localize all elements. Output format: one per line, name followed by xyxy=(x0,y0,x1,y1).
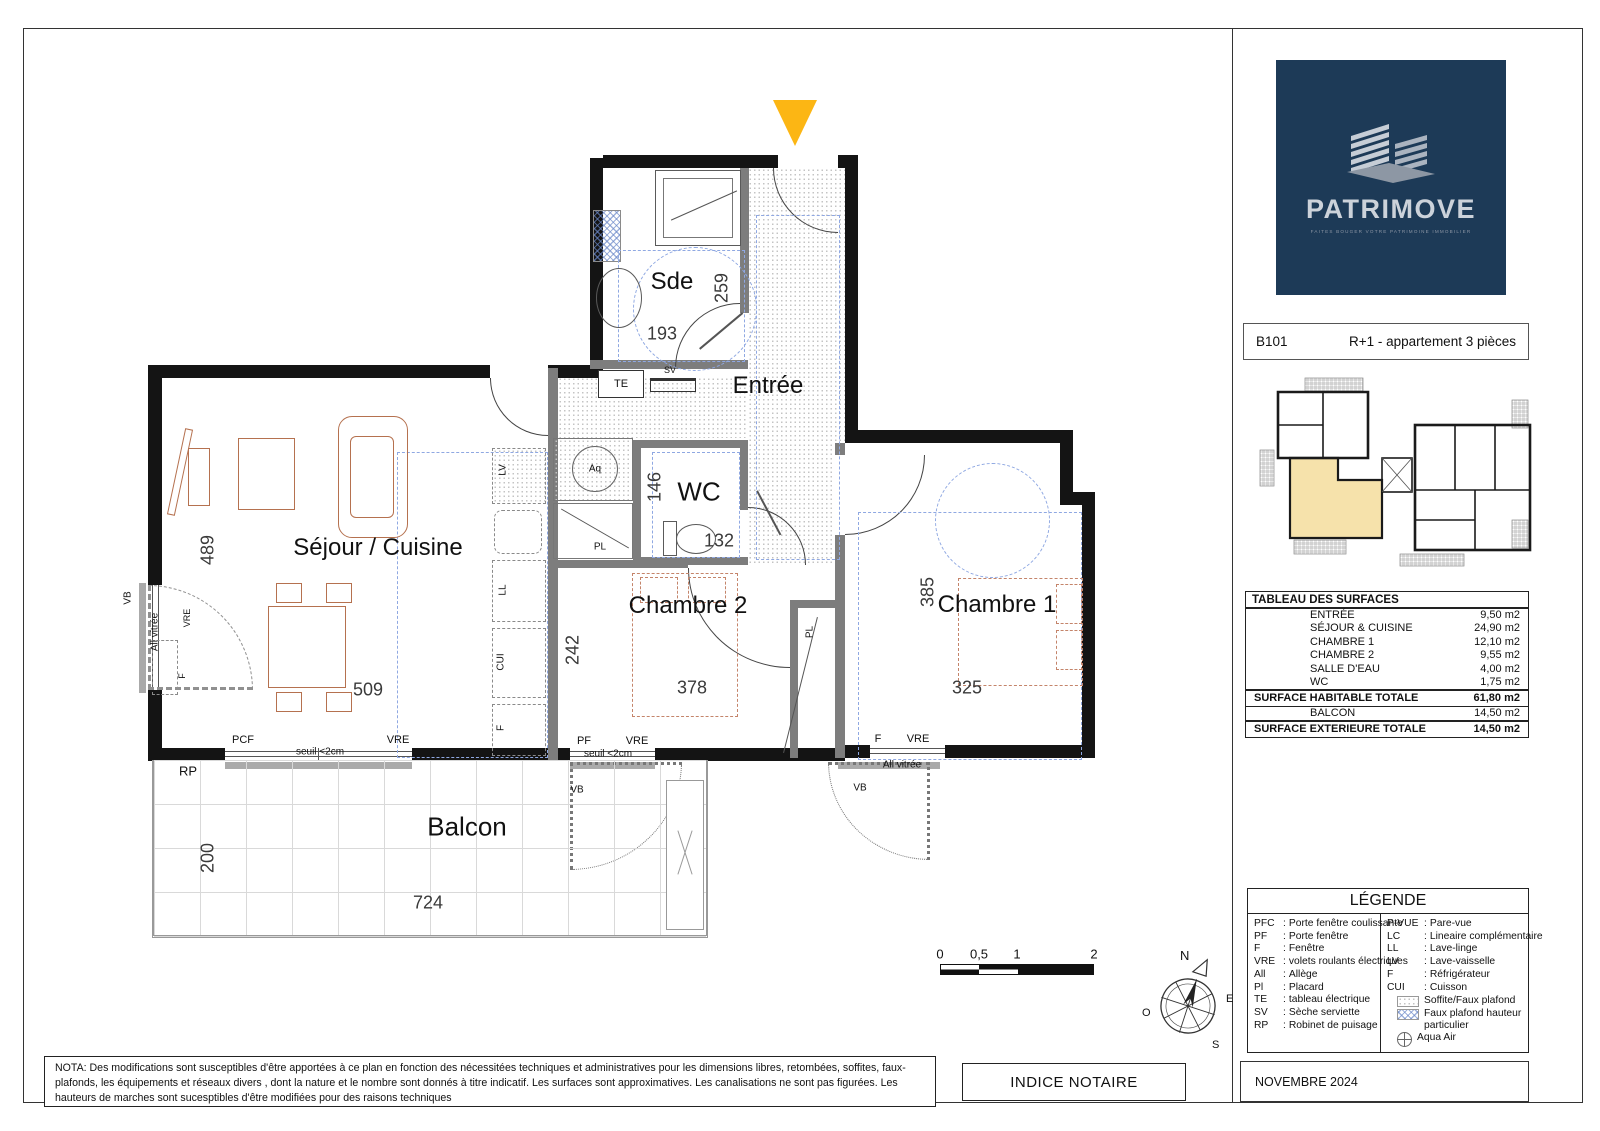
dim-wc-w: 132 xyxy=(704,531,734,552)
f-label: F xyxy=(875,733,882,745)
legend-abbr: LL xyxy=(1387,943,1421,956)
legend-text: Placard xyxy=(1289,982,1324,995)
surface-name: ENTRÉE xyxy=(1310,609,1355,622)
legend-text: Lave-vaisselle xyxy=(1430,956,1495,969)
lv-label: LV xyxy=(498,464,509,476)
wall-segment xyxy=(1060,492,1095,505)
legend-abbr: P-VUE xyxy=(1387,918,1421,931)
surface-name: SURFACE HABITABLE TOTALE xyxy=(1254,692,1418,706)
legend-text: Faux plafond hauteur particulier xyxy=(1424,1008,1539,1031)
partition xyxy=(790,600,835,608)
aqua-air-icon xyxy=(1397,1032,1412,1047)
nota-box: NOTA: Des modifications sont susceptible… xyxy=(44,1056,936,1107)
legend-text: Réfrigérateur xyxy=(1430,969,1490,982)
legend-title: LÉGENDE xyxy=(1248,889,1528,914)
ll-label: LL xyxy=(498,584,509,595)
surface-value: 9,55 m2 xyxy=(1480,649,1520,662)
dim-chambre2-h: 242 xyxy=(563,635,584,665)
lot-title: R+1 - appartement 3 pièces xyxy=(1349,334,1516,349)
kitchen-sink xyxy=(494,510,542,554)
placard-label: PL xyxy=(805,626,816,638)
vre-label: VRE xyxy=(626,735,649,747)
side-table xyxy=(238,438,295,510)
room-label-chambre2: Chambre 2 xyxy=(629,592,748,620)
fridge-label: F xyxy=(496,725,507,731)
all-vitree-label: All vitrée xyxy=(150,613,161,651)
scale-tick: 2 xyxy=(1090,947,1097,962)
company-logo: PATRIMOVE FAITES BOUGER VOTRE PATRIMOINE… xyxy=(1276,60,1506,295)
surface-value: 14,50 m2 xyxy=(1474,723,1520,737)
surface-name: WC xyxy=(1310,676,1328,689)
surface-name: CHAMBRE 2 xyxy=(1310,649,1374,662)
compass-s: S xyxy=(1212,1039,1219,1051)
surface-value: 24,90 m2 xyxy=(1474,622,1520,635)
dim-sde-w: 193 xyxy=(647,324,677,345)
dim-wc-h: 146 xyxy=(645,472,666,502)
surface-value: 12,10 m2 xyxy=(1474,636,1520,649)
scale-segment xyxy=(941,965,979,974)
balcony-door-arc xyxy=(828,762,930,860)
legend-text: Allège xyxy=(1289,969,1318,982)
turning-circle xyxy=(633,247,757,371)
chair xyxy=(276,583,302,603)
scale-bar xyxy=(940,964,1094,975)
surface-name: CHAMBRE 1 xyxy=(1310,636,1374,649)
dim-sde-h: 259 xyxy=(712,273,733,303)
window-swing-arc xyxy=(148,585,253,690)
surface-row: BALCON14,50 m2 xyxy=(1246,706,1528,720)
indice-notaire-label: INDICE NOTAIRE xyxy=(1010,1074,1138,1091)
legend-abbr: VRE xyxy=(1254,956,1280,969)
dim-balcon-h: 200 xyxy=(198,843,219,873)
washbasin xyxy=(596,268,642,328)
partition xyxy=(790,600,798,758)
dim-sejour-h: 489 xyxy=(198,535,219,565)
scale-segment xyxy=(979,965,1018,974)
pillow xyxy=(1056,630,1082,670)
lot-header: B101 R+1 - appartement 3 pièces xyxy=(1243,323,1529,360)
legend-text: Fenêtre xyxy=(1289,943,1325,956)
wall-segment xyxy=(1082,505,1095,758)
door-arc-sejour xyxy=(490,378,548,436)
legend-abbr: LV xyxy=(1387,956,1421,969)
cui-label: CUI xyxy=(496,653,507,670)
entrance-arrow xyxy=(773,100,817,146)
surface-value: 4,00 m2 xyxy=(1480,663,1520,676)
pillow xyxy=(1056,584,1082,624)
rp-label: RP xyxy=(179,764,197,779)
chair xyxy=(326,692,352,712)
surface-table-title: TABLEAU DES SURFACES xyxy=(1246,592,1528,609)
partition xyxy=(633,440,748,448)
surface-name: BALCON xyxy=(1310,707,1355,720)
key-plan xyxy=(1250,370,1535,570)
room-label-entree: Entrée xyxy=(733,372,804,400)
surface-value: 9,50 m2 xyxy=(1480,609,1520,622)
faux-plafond-swatch xyxy=(1397,1009,1419,1020)
seuil-label: seuil <2cm xyxy=(296,747,344,758)
vre-label: VRE xyxy=(182,609,192,628)
legend-abbr: TE xyxy=(1254,994,1280,1007)
legend-abbr: LC xyxy=(1387,931,1421,944)
vb-label: VB xyxy=(853,783,866,794)
partition xyxy=(633,440,641,565)
legend-abbr: F xyxy=(1254,943,1280,956)
wall-segment xyxy=(148,365,162,585)
toilet-tank xyxy=(663,521,677,556)
logo-tagline: FAITES BOUGER VOTRE PATRIMOINE IMMOBILIE… xyxy=(1311,229,1472,234)
room-label-chambre1: Chambre 1 xyxy=(938,591,1057,619)
nota-text: NOTA: Des modifications sont susceptible… xyxy=(55,1062,906,1104)
legend-text: tableau électrique xyxy=(1289,994,1370,1007)
surface-row: WC1,75 m2 xyxy=(1246,676,1528,689)
vre-label: VRE xyxy=(387,734,410,746)
surface-row: SALLE D'EAU4,00 m2 xyxy=(1246,663,1528,676)
compass-o: O xyxy=(1142,1007,1151,1019)
scale-segment xyxy=(1018,965,1093,974)
surface-total-row: SURFACE EXTERIEURE TOTALE14,50 m2 xyxy=(1246,720,1528,737)
surface-row: CHAMBRE 112,10 m2 xyxy=(1246,636,1528,649)
legend-abbr: F xyxy=(1387,969,1421,982)
vb-label: VB xyxy=(570,785,583,796)
insulated-wall xyxy=(593,210,621,262)
window-sill xyxy=(139,583,146,693)
legend-text: Porte fenêtre xyxy=(1289,931,1349,944)
dim-chambre1-h: 385 xyxy=(918,577,939,607)
aqua-air-label: Aq xyxy=(589,464,601,475)
legend-text: Pare-vue xyxy=(1430,918,1472,931)
partition xyxy=(553,560,688,568)
indice-notaire-box: INDICE NOTAIRE xyxy=(962,1063,1186,1101)
legend-abbr: RP xyxy=(1254,1020,1280,1033)
room-label-balcon: Balcon xyxy=(427,812,507,843)
dishwasher xyxy=(492,448,546,504)
surface-name: SURFACE EXTERIEURE TOTALE xyxy=(1254,723,1426,737)
wall-segment xyxy=(603,155,778,168)
surface-table: TABLEAU DES SURFACES ENTRÉE9,50 m2 SÉJOU… xyxy=(1245,591,1529,738)
surface-row: CHAMBRE 29,55 m2 xyxy=(1246,649,1528,662)
wall-segment xyxy=(148,365,490,378)
chair xyxy=(276,692,302,712)
wall-segment xyxy=(858,430,1073,443)
dining-table xyxy=(268,606,346,688)
dim-chambre2-w: 378 xyxy=(677,678,707,699)
sofa-cushions xyxy=(350,436,394,518)
room-label-wc: WC xyxy=(677,477,720,508)
surface-name: SÉJOUR & CUISINE xyxy=(1310,622,1413,635)
pf-label: PF xyxy=(577,735,591,747)
placard-label: PL xyxy=(594,542,606,553)
seche-serviette xyxy=(650,378,696,392)
scale-tick: 0 xyxy=(936,947,943,962)
surface-row: SÉJOUR & CUISINE24,90 m2 xyxy=(1246,622,1528,635)
room-label-sde: Sde xyxy=(651,268,694,296)
partition xyxy=(835,535,845,758)
te-label: TE xyxy=(614,378,628,390)
scale-tick: 1 xyxy=(1013,947,1020,962)
compass-n: N xyxy=(1180,948,1189,963)
dim-chambre1-w: 325 xyxy=(952,678,982,699)
soffite-swatch xyxy=(1397,996,1419,1007)
legend-text: Lave-linge xyxy=(1430,943,1478,956)
legend-text: Soffite/Faux plafond xyxy=(1424,995,1539,1007)
legend-text: Lineaire complémentaire xyxy=(1430,931,1543,944)
logo-wordmark: PATRIMOVE xyxy=(1306,194,1476,225)
legend-text: Cuisson xyxy=(1430,982,1467,995)
turning-circle xyxy=(935,463,1050,578)
legend-abbr: All xyxy=(1254,969,1280,982)
legend-abbr: PFC xyxy=(1254,918,1280,931)
tv-stand xyxy=(188,448,210,506)
lot-number: B101 xyxy=(1256,334,1288,349)
dim-balcon-w: 724 xyxy=(413,893,443,914)
legend-abbr: CUI xyxy=(1387,982,1421,995)
date-box: NOVEMBRE 2024 xyxy=(1240,1061,1529,1102)
vre-label: VRE xyxy=(907,733,930,745)
surface-value: 14,50 m2 xyxy=(1474,707,1520,720)
all-vitree-label: All vitrée xyxy=(883,760,921,771)
compass-rose: N E S O xyxy=(1140,946,1236,1052)
partition xyxy=(740,440,748,510)
seuil-label: seuil <2cm xyxy=(584,749,632,760)
chair xyxy=(326,583,352,603)
legend-text: Sèche serviette xyxy=(1289,1007,1360,1020)
key-plan-unit-highlight xyxy=(1290,458,1382,538)
f-label: F xyxy=(177,673,187,679)
surface-value: 1,75 m2 xyxy=(1480,676,1520,689)
legend-left-column: PFC:Porte fenêtre coulissante PF:Porte f… xyxy=(1248,914,1381,1052)
surface-value: 61,80 m2 xyxy=(1474,692,1520,706)
surface-row: ENTRÉE9,50 m2 xyxy=(1246,609,1528,622)
legend-abbr: SV xyxy=(1254,1007,1280,1020)
legend-text: Aqua Air xyxy=(1417,1032,1532,1044)
compass-e: E xyxy=(1226,993,1233,1005)
date-label: NOVEMBRE 2024 xyxy=(1255,1075,1358,1089)
surface-total-row: SURFACE HABITABLE TOTALE61,80 m2 xyxy=(1246,689,1528,706)
logo-buildings-icon xyxy=(1329,122,1454,186)
legend-text: Robinet de puisage xyxy=(1289,1020,1378,1033)
legend-right-column: P-VUE:Pare-vue LC:Lineaire complémentair… xyxy=(1381,914,1545,1052)
legend: LÉGENDE PFC:Porte fenêtre coulissante PF… xyxy=(1247,888,1529,1053)
room-label-sejour: Séjour / Cuisine xyxy=(293,534,462,562)
legend-abbr: PF xyxy=(1254,931,1280,944)
scale-tick: 0,5 xyxy=(970,947,988,962)
plan-sheet: Aq PL PL TE SV xyxy=(0,0,1600,1131)
wall-segment xyxy=(845,155,858,443)
pcf-label: PCF xyxy=(232,734,254,746)
surface-name: SALLE D'EAU xyxy=(1310,663,1380,676)
dim-sejour-w: 509 xyxy=(353,680,383,701)
legend-abbr: Pl xyxy=(1254,982,1280,995)
vb-label: VB xyxy=(123,591,134,604)
